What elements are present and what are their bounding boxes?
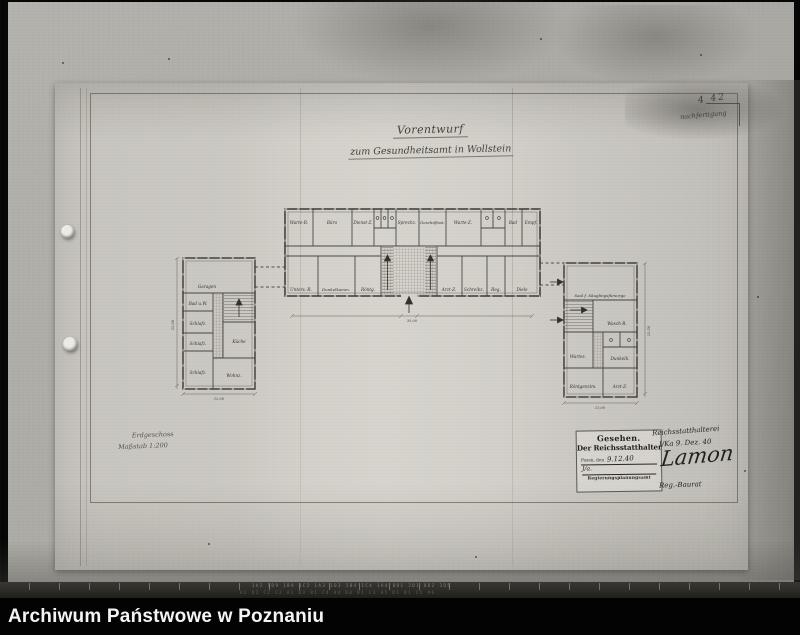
film-edge-strip: 1A2 1D9 1B9 1C2 1A3 1D3 1B4 1C4 1A4 8D1 … xyxy=(0,582,800,598)
scanned-archive-photo: Vorentwurf zum Gesundheitsamt in Wollste… xyxy=(0,0,800,635)
film-strip-codes-row1: 1A2 1D9 1B9 1C2 1A3 1D3 1B4 1C4 1A4 8D1 … xyxy=(252,583,451,588)
archive-footer-bar: Archiwum Państwowe w Poznaniu xyxy=(0,598,800,635)
film-grain-overlay xyxy=(0,0,800,582)
archive-name: Archiwum Państwowe w Poznaniu xyxy=(0,606,324,628)
film-strip-codes-row2: A2 D2 C2 C2 A1 D3 B1 C4 A4 D4 B1 C3 A5 D… xyxy=(240,590,435,595)
